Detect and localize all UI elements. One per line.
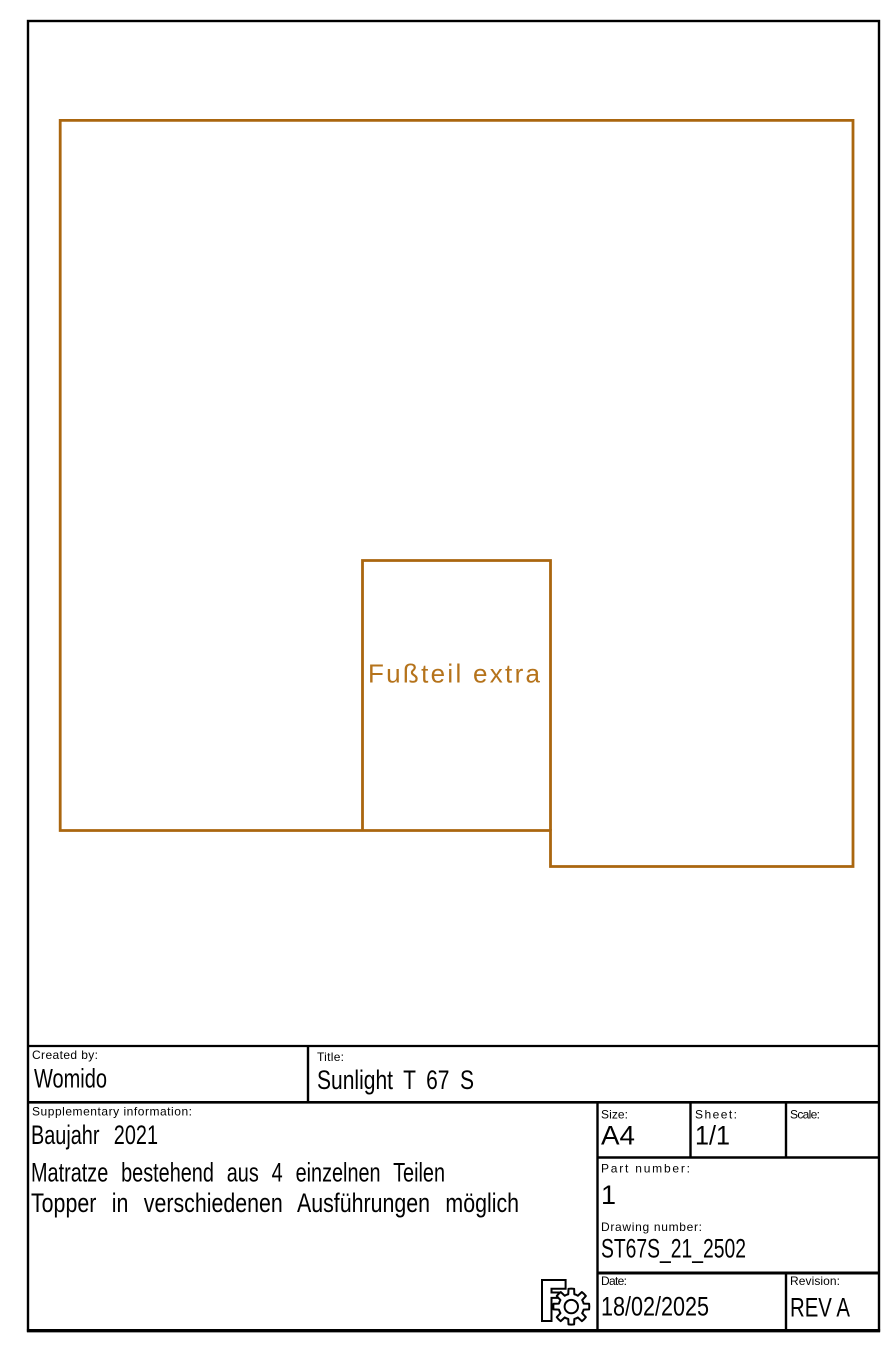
svg-text:Title:: Title: bbox=[317, 1050, 344, 1064]
svg-text:1: 1 bbox=[601, 1180, 616, 1210]
svg-text:Matratze bestehend aus 4 einze: Matratze bestehend aus 4 einzelnen Teile… bbox=[31, 1158, 445, 1188]
svg-text:18/02/2025: 18/02/2025 bbox=[601, 1292, 709, 1322]
svg-text:Created by:: Created by: bbox=[32, 1048, 98, 1062]
svg-text:Drawing number:: Drawing number: bbox=[601, 1220, 702, 1234]
svg-text:Sheet:: Sheet: bbox=[695, 1108, 737, 1122]
svg-text:Revision:: Revision: bbox=[790, 1274, 840, 1288]
svg-text:A4: A4 bbox=[601, 1121, 635, 1151]
svg-text:Topper in verschiedenen Ausfüh: Topper in verschiedenen Ausführungen mög… bbox=[31, 1188, 519, 1218]
svg-text:1/1: 1/1 bbox=[695, 1121, 730, 1151]
svg-text:Part number:: Part number: bbox=[601, 1162, 690, 1176]
svg-text:Date:: Date: bbox=[601, 1274, 627, 1288]
svg-text:Supplementary information:: Supplementary information: bbox=[32, 1105, 192, 1119]
svg-text:Womido: Womido bbox=[34, 1064, 107, 1094]
svg-text:ST67S_21_2502: ST67S_21_2502 bbox=[601, 1234, 746, 1264]
svg-text:Sunlight T 67 S: Sunlight T 67 S bbox=[317, 1065, 474, 1095]
svg-text:REV A: REV A bbox=[790, 1293, 850, 1323]
svg-text:Scale:: Scale: bbox=[790, 1108, 820, 1122]
svg-text:Baujahr 2021: Baujahr 2021 bbox=[31, 1120, 158, 1150]
svg-text:Size:: Size: bbox=[601, 1108, 628, 1122]
